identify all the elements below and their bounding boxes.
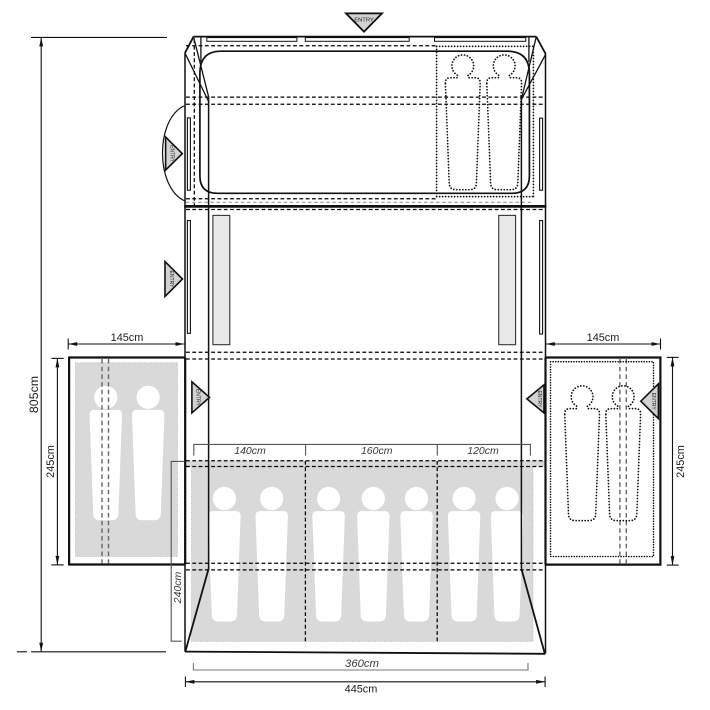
- svg-text:805cm: 805cm: [27, 376, 41, 413]
- svg-text:ENTRY: ENTRY: [168, 145, 174, 163]
- svg-text:ENTRY: ENTRY: [536, 390, 542, 408]
- svg-text:245cm: 245cm: [675, 445, 687, 478]
- svg-text:145cm: 145cm: [111, 332, 144, 344]
- svg-text:245cm: 245cm: [45, 445, 57, 478]
- svg-text:445cm: 445cm: [345, 684, 378, 696]
- svg-text:ENTRY: ENTRY: [650, 393, 656, 411]
- svg-text:160cm: 160cm: [361, 445, 393, 457]
- svg-text:ENTRY: ENTRY: [168, 271, 174, 289]
- svg-text:360cm: 360cm: [345, 658, 379, 670]
- svg-text:120cm: 120cm: [467, 445, 499, 457]
- svg-text:240cm: 240cm: [172, 571, 184, 604]
- svg-text:140cm: 140cm: [234, 445, 266, 457]
- svg-text:ENTRY: ENTRY: [195, 389, 201, 407]
- svg-text:145cm: 145cm: [587, 332, 620, 344]
- svg-text:ENTRY: ENTRY: [354, 17, 374, 23]
